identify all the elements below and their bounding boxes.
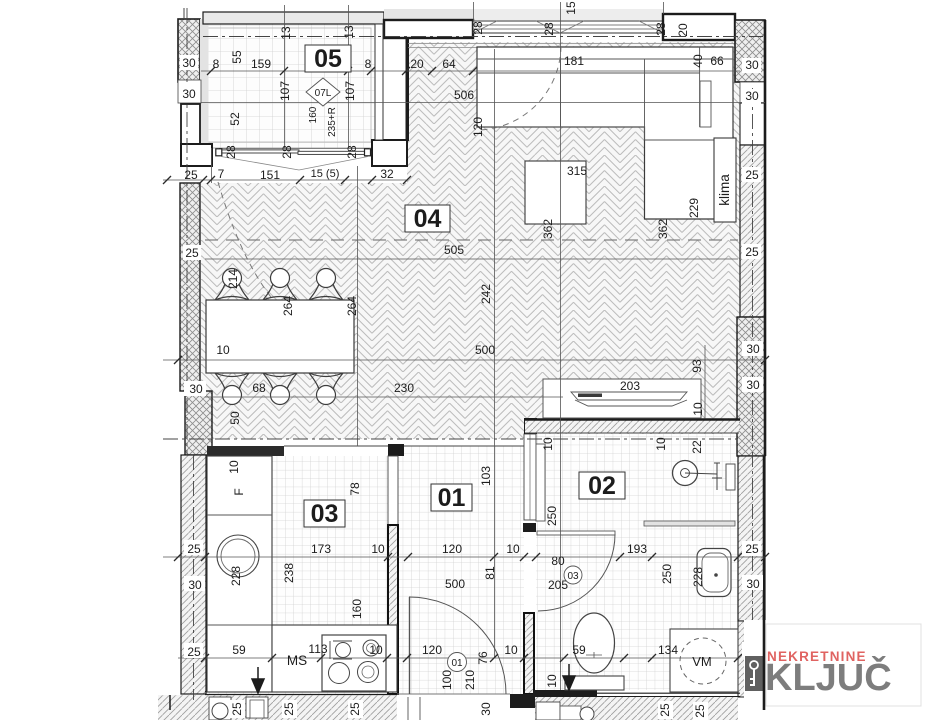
svg-text:25: 25 bbox=[187, 645, 201, 659]
svg-text:10: 10 bbox=[227, 460, 241, 474]
svg-text:264: 264 bbox=[345, 296, 359, 316]
svg-text:160: 160 bbox=[308, 106, 319, 123]
svg-text:81: 81 bbox=[483, 566, 497, 580]
svg-text:01: 01 bbox=[451, 658, 463, 669]
svg-text:210: 210 bbox=[463, 670, 477, 690]
svg-text:28: 28 bbox=[280, 145, 294, 159]
svg-text:40: 40 bbox=[691, 54, 705, 68]
svg-text:78: 78 bbox=[348, 482, 362, 496]
svg-text:134: 134 bbox=[658, 643, 678, 657]
svg-text:30: 30 bbox=[745, 58, 759, 72]
svg-text:10: 10 bbox=[654, 437, 668, 451]
svg-text:02: 02 bbox=[588, 472, 616, 500]
svg-text:MS: MS bbox=[287, 653, 307, 668]
svg-text:120: 120 bbox=[471, 117, 485, 137]
svg-text:13: 13 bbox=[342, 25, 356, 39]
svg-text:30: 30 bbox=[188, 578, 202, 592]
svg-text:159: 159 bbox=[251, 57, 271, 71]
svg-text:151: 151 bbox=[260, 168, 280, 182]
svg-text:25: 25 bbox=[230, 702, 244, 716]
svg-text:214: 214 bbox=[226, 269, 240, 289]
svg-text:55: 55 bbox=[230, 50, 244, 64]
svg-text:80: 80 bbox=[551, 554, 565, 568]
svg-text:193: 193 bbox=[627, 542, 647, 556]
svg-text:25: 25 bbox=[184, 168, 198, 182]
svg-text:500: 500 bbox=[475, 343, 495, 357]
svg-text:30: 30 bbox=[746, 577, 760, 591]
svg-text:25: 25 bbox=[187, 542, 201, 556]
svg-text:506: 506 bbox=[454, 88, 474, 102]
svg-text:66: 66 bbox=[710, 54, 724, 68]
svg-text:93: 93 bbox=[690, 359, 704, 373]
svg-text:VM: VM bbox=[692, 654, 712, 669]
svg-text:25: 25 bbox=[282, 702, 296, 716]
svg-text:250: 250 bbox=[660, 564, 674, 584]
svg-text:10: 10 bbox=[504, 643, 518, 657]
svg-text:8: 8 bbox=[213, 57, 220, 71]
svg-text:52: 52 bbox=[228, 112, 242, 126]
svg-text:500: 500 bbox=[445, 577, 465, 591]
svg-text:228: 228 bbox=[691, 567, 705, 587]
svg-text:230: 230 bbox=[394, 381, 414, 395]
svg-text:30: 30 bbox=[746, 378, 760, 392]
svg-text:250: 250 bbox=[545, 506, 559, 526]
svg-text:20: 20 bbox=[676, 23, 690, 37]
svg-text:203: 203 bbox=[620, 379, 640, 393]
svg-text:59: 59 bbox=[572, 643, 586, 657]
svg-text:28: 28 bbox=[654, 22, 668, 36]
svg-text:10: 10 bbox=[369, 643, 383, 657]
svg-text:30: 30 bbox=[745, 89, 759, 103]
svg-text:25: 25 bbox=[745, 168, 759, 182]
svg-text:25: 25 bbox=[693, 704, 707, 718]
svg-text:15: 15 bbox=[564, 1, 578, 15]
svg-text:235+R: 235+R bbox=[327, 107, 338, 137]
svg-text:7: 7 bbox=[218, 167, 225, 181]
svg-text:28: 28 bbox=[224, 145, 238, 159]
svg-text:03: 03 bbox=[567, 571, 579, 582]
svg-text:160: 160 bbox=[350, 599, 364, 619]
svg-text:264: 264 bbox=[281, 296, 295, 316]
svg-text:05: 05 bbox=[314, 45, 342, 73]
svg-text:22: 22 bbox=[690, 440, 704, 454]
svg-text:28: 28 bbox=[471, 21, 485, 35]
svg-text:229: 229 bbox=[687, 198, 701, 218]
svg-text:8: 8 bbox=[365, 57, 372, 71]
svg-text:30: 30 bbox=[182, 56, 196, 70]
svg-text:30: 30 bbox=[182, 87, 196, 101]
svg-text:120: 120 bbox=[422, 643, 442, 657]
svg-text:30: 30 bbox=[479, 702, 493, 716]
svg-text:klima: klima bbox=[717, 174, 732, 206]
svg-text:181: 181 bbox=[564, 54, 584, 68]
svg-text:228: 228 bbox=[229, 566, 243, 586]
svg-text:25: 25 bbox=[745, 542, 759, 556]
svg-text:107: 107 bbox=[278, 81, 292, 101]
svg-text:01: 01 bbox=[438, 484, 466, 512]
svg-text:30: 30 bbox=[189, 382, 203, 396]
svg-text:113: 113 bbox=[308, 642, 327, 656]
svg-text:362: 362 bbox=[541, 219, 555, 239]
svg-text:242: 242 bbox=[479, 284, 493, 304]
svg-text:505: 505 bbox=[444, 243, 464, 257]
svg-text:68: 68 bbox=[252, 381, 266, 395]
svg-text:59: 59 bbox=[232, 643, 246, 657]
svg-text:238: 238 bbox=[282, 563, 296, 583]
svg-text:315: 315 bbox=[567, 164, 587, 178]
svg-text:10: 10 bbox=[691, 402, 705, 416]
svg-text:04: 04 bbox=[414, 205, 442, 233]
svg-text:30: 30 bbox=[746, 342, 760, 356]
svg-text:32: 32 bbox=[380, 167, 394, 181]
svg-text:107: 107 bbox=[343, 81, 357, 101]
svg-text:03: 03 bbox=[311, 500, 339, 528]
svg-text:120: 120 bbox=[442, 542, 462, 556]
svg-text:25: 25 bbox=[658, 703, 672, 717]
svg-text:25: 25 bbox=[745, 245, 759, 259]
svg-text:362: 362 bbox=[656, 219, 670, 239]
svg-text:KLJUČ: KLJUČ bbox=[765, 654, 892, 699]
svg-text:25: 25 bbox=[348, 702, 362, 716]
svg-text:10: 10 bbox=[371, 542, 385, 556]
svg-text:100: 100 bbox=[440, 670, 454, 690]
svg-text:07L: 07L bbox=[315, 88, 332, 99]
svg-text:10: 10 bbox=[506, 542, 520, 556]
svg-text:10: 10 bbox=[541, 437, 555, 451]
svg-text:76: 76 bbox=[476, 651, 490, 665]
svg-text:F: F bbox=[232, 488, 246, 495]
svg-text:10: 10 bbox=[545, 674, 559, 688]
svg-text:13: 13 bbox=[279, 26, 293, 40]
svg-text:28: 28 bbox=[345, 145, 359, 159]
svg-text:10: 10 bbox=[216, 343, 230, 357]
svg-text:28: 28 bbox=[542, 22, 556, 36]
svg-text:20: 20 bbox=[410, 57, 424, 71]
svg-text:25: 25 bbox=[185, 246, 199, 260]
svg-text:103: 103 bbox=[479, 466, 493, 486]
svg-text:50: 50 bbox=[228, 411, 242, 425]
svg-text:173: 173 bbox=[311, 542, 331, 556]
svg-text:15 (5): 15 (5) bbox=[311, 168, 340, 180]
svg-text:64: 64 bbox=[442, 57, 456, 71]
